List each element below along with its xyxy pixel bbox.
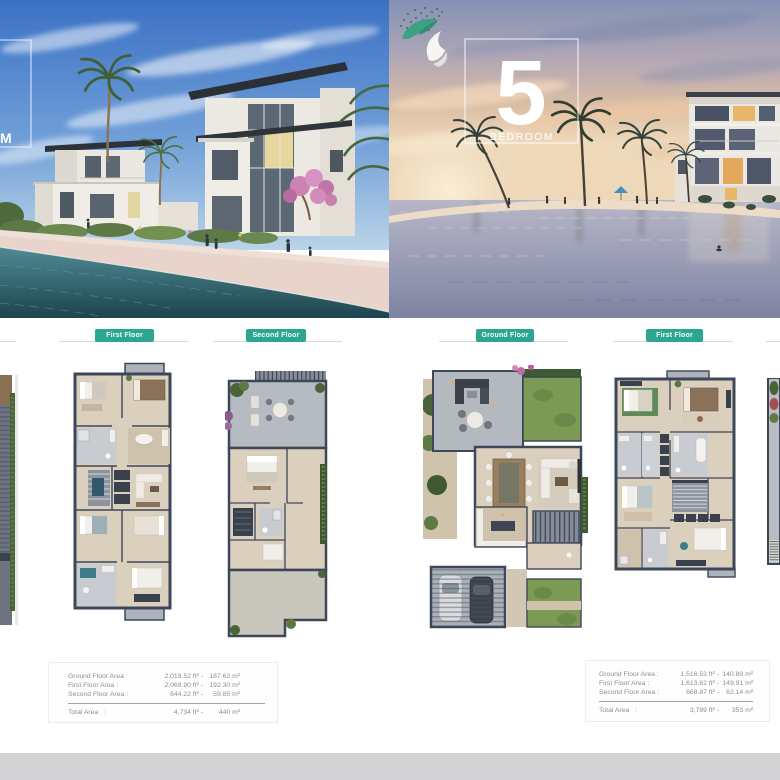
area-row-label: Ground Floor Area : bbox=[68, 672, 148, 681]
floor-label-second-floor: Second Floor bbox=[246, 329, 306, 342]
area-row-ft: 2,019.52 ft² - bbox=[148, 672, 203, 681]
floor-plan-first-floor-right bbox=[612, 370, 738, 578]
footer-strip bbox=[0, 753, 780, 780]
area-row: Second Floor Area : 668.87 ft² - 62.14 m… bbox=[599, 688, 753, 697]
bedroom-count-number: 5 bbox=[495, 42, 546, 144]
total-row: Total Area : 3,799 ft² - 353 m² bbox=[599, 706, 753, 715]
area-table-right: Ground Floor Area : 1,516.53 ft² - 140.8… bbox=[585, 660, 770, 722]
area-row: First Floor Area : 2,069.90 ft² - 192.30… bbox=[68, 681, 265, 690]
table-divider bbox=[68, 703, 265, 704]
area-row: Ground Floor Area : 1,516.53 ft² - 140.8… bbox=[599, 670, 753, 679]
sunset-villa-illustration bbox=[675, 92, 780, 203]
hero-photo-day-villas: M bbox=[0, 0, 389, 318]
bedroom-fragment-text: M bbox=[0, 130, 12, 146]
table-divider bbox=[599, 701, 753, 702]
area-row: Ground Floor Area : 2,019.52 ft² - 187.6… bbox=[68, 672, 265, 681]
floor-plan-cropped-right bbox=[766, 378, 780, 568]
floor-plan-cropped-left bbox=[0, 353, 18, 647]
floor-label-ground-floor: Ground Floor bbox=[476, 329, 534, 342]
area-table-left: Ground Floor Area : 2,019.52 ft² - 187.6… bbox=[48, 662, 278, 723]
area-row-m: 187.62 m² bbox=[203, 672, 240, 681]
area-row: Second Floor Area : 644.22 ft² - 59.85 m… bbox=[68, 690, 265, 699]
hero-photo-sunset-5bedroom: 5 BEDROOM bbox=[389, 0, 780, 318]
brochure-page: M bbox=[0, 0, 780, 780]
rule-right-edge bbox=[766, 341, 780, 342]
floor-plan-ground-floor bbox=[423, 365, 588, 633]
bedroom-count-label: BEDROOM bbox=[490, 132, 554, 143]
floor-label-first-floor-1: First Floor bbox=[95, 329, 154, 342]
area-row: First Floor Area : 1,613.62 ft² - 149.91… bbox=[599, 679, 753, 688]
floor-label-first-floor-2: First Floor bbox=[646, 329, 703, 342]
total-row: Total Area : 4,734 ft² - 440 m² bbox=[68, 708, 265, 717]
rule-left-edge bbox=[0, 341, 16, 342]
floor-plan-second-floor bbox=[225, 368, 330, 645]
floor-plan-first-floor-left bbox=[72, 362, 173, 622]
